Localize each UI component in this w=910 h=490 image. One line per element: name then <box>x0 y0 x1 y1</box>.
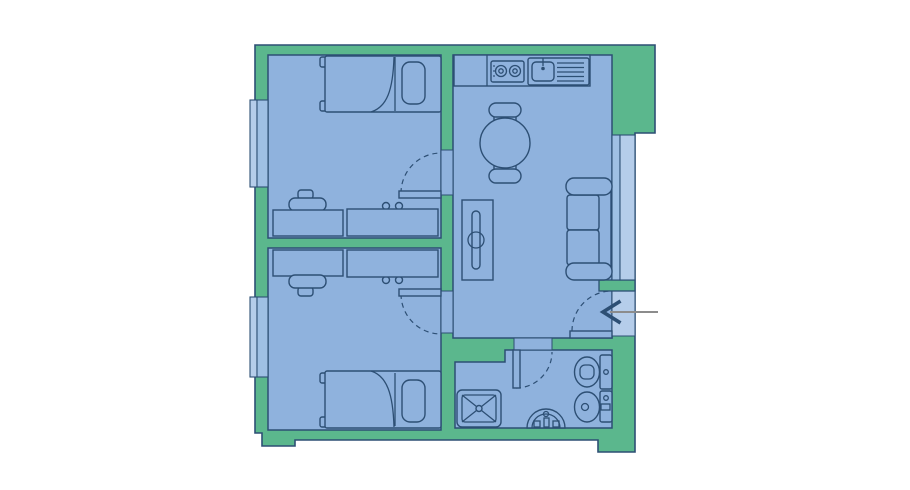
window-bedroom-bottom <box>250 297 268 377</box>
desk-bedroom-bottom <box>273 250 343 276</box>
door-opening-bedroom-bottom <box>441 291 453 333</box>
sofa-cushion-top <box>567 195 599 230</box>
pillow-bottom <box>402 380 425 422</box>
stove <box>491 61 524 82</box>
door-leaf-entrance <box>570 331 612 338</box>
sofa-arm-top <box>566 178 612 195</box>
door-opening-entrance <box>612 291 635 336</box>
sofa-cushion-bottom <box>567 230 599 265</box>
toilet <box>575 355 613 389</box>
entrance-wall-pillar <box>599 280 635 291</box>
radiator <box>462 200 493 280</box>
floor-plan-stage <box>0 0 910 490</box>
bed-top <box>320 56 441 112</box>
pillow-top <box>402 62 425 104</box>
desk-bedroom-top <box>273 210 343 236</box>
door-leaf-bedroom-top <box>399 191 441 198</box>
door-opening-bathroom <box>514 338 552 350</box>
floor-plan-svg <box>0 0 910 490</box>
sofa-arm-bottom <box>566 263 612 280</box>
sofa-back <box>598 186 611 274</box>
window-bedroom-top <box>250 100 268 187</box>
door-opening-bedroom-top <box>441 150 453 195</box>
sofa <box>566 178 612 280</box>
bed-bottom <box>320 371 441 428</box>
window-living <box>612 135 635 280</box>
door-leaf-bathroom <box>513 350 520 388</box>
kitchen-sink <box>528 58 589 85</box>
bidet <box>575 391 613 422</box>
door-leaf-bedroom-bottom <box>399 289 441 296</box>
shower <box>457 390 501 427</box>
